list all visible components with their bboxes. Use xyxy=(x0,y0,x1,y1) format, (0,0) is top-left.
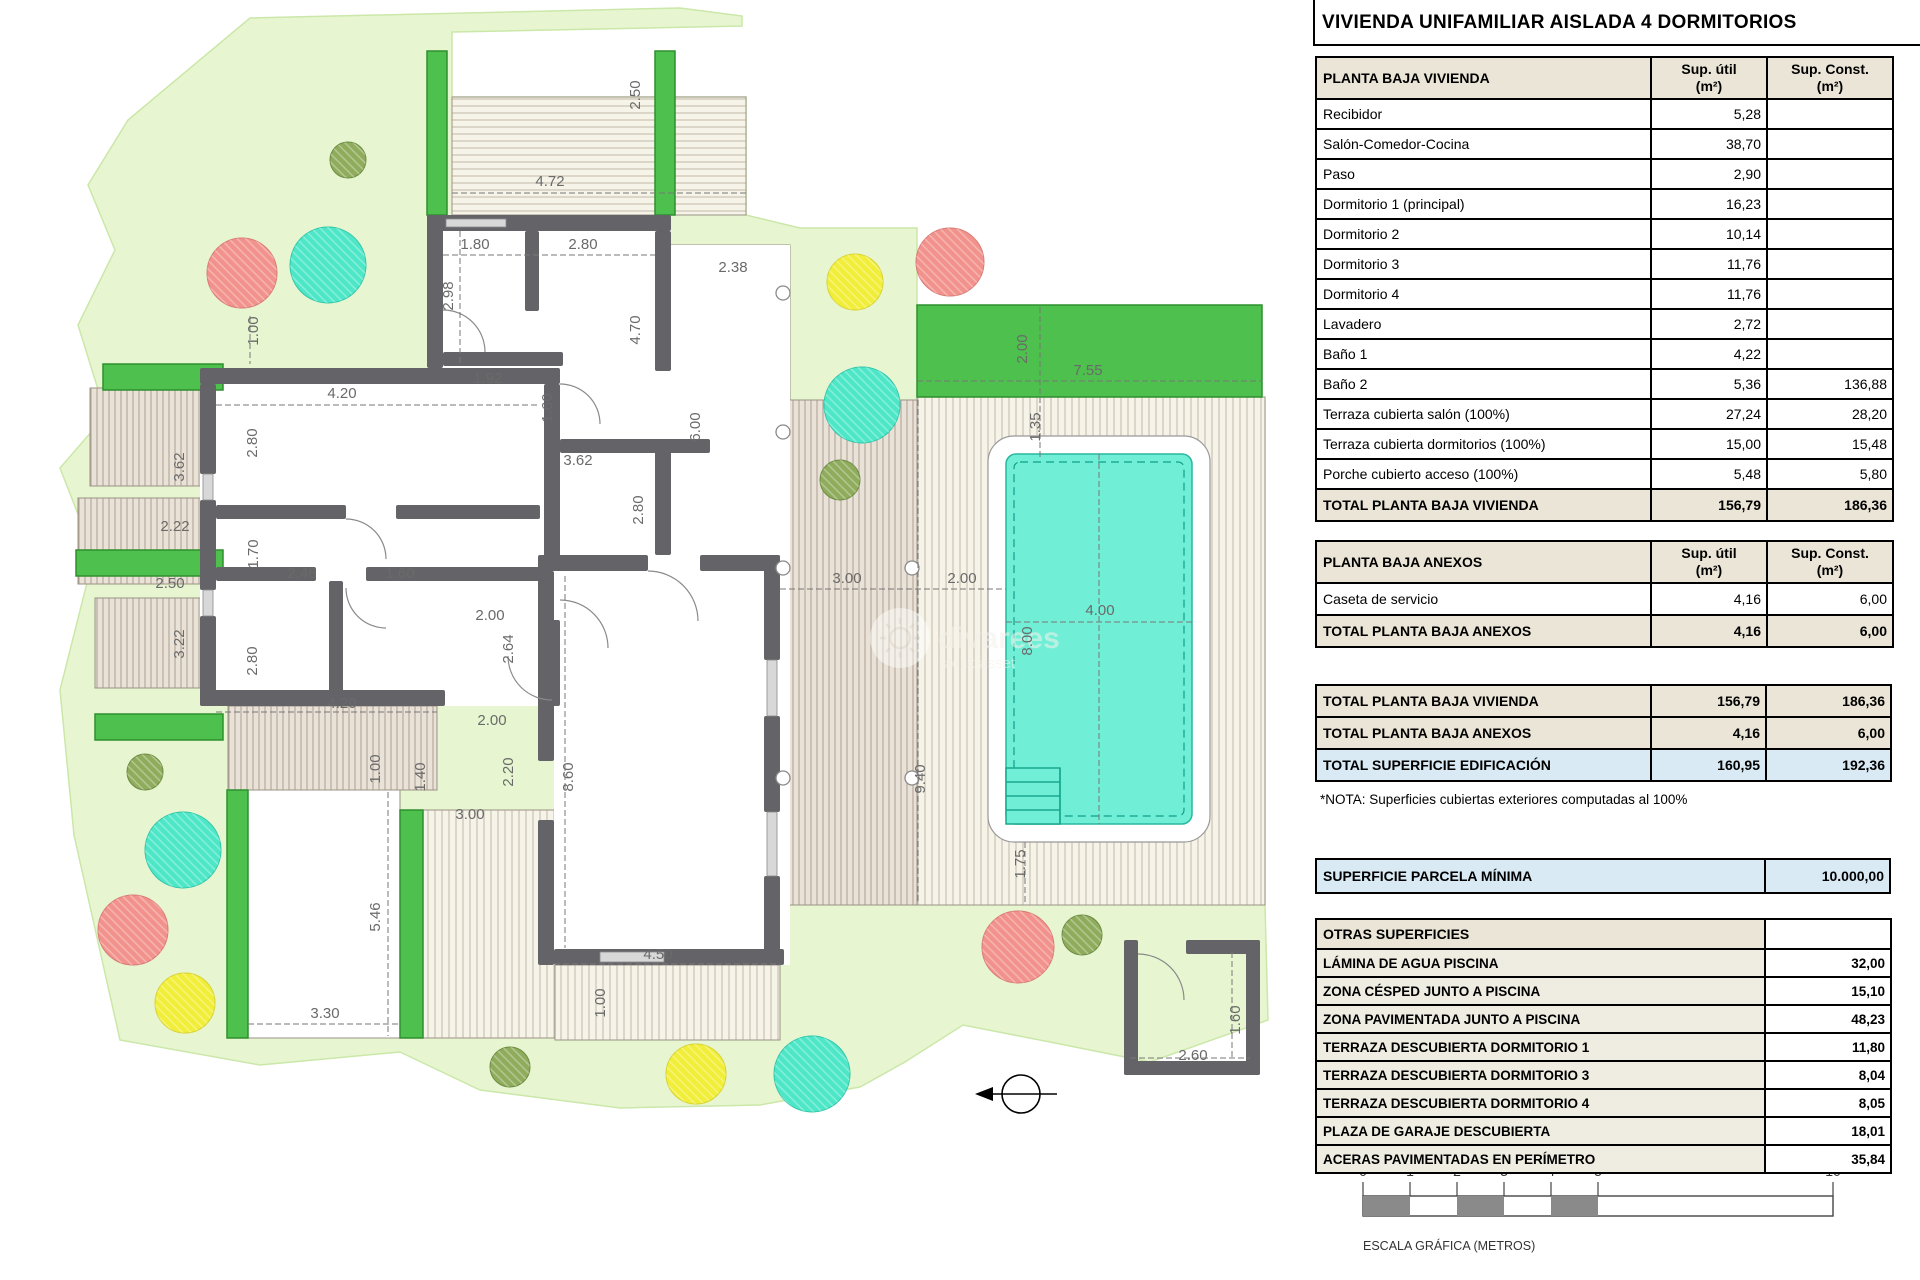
table-row: Porche cubierto acceso (100%)5,485,80 xyxy=(1316,459,1893,489)
table-totales: TOTAL PLANTA BAJA VIVIENDA156,79186,36TO… xyxy=(1315,684,1892,782)
value-sup-util: 15,00 xyxy=(1651,429,1767,459)
value-sup-const xyxy=(1767,189,1893,219)
row-label: TOTAL PLANTA BAJA ANEXOS xyxy=(1316,717,1651,749)
title-rule-vertical xyxy=(1313,0,1315,45)
value-sup-util: 160,95 xyxy=(1651,749,1766,781)
row-value: 18,01 xyxy=(1765,1117,1891,1145)
north-arrow-icon xyxy=(975,1075,1057,1113)
row-label: ACERAS PAVIMENTADAS EN PERÍMETRO xyxy=(1316,1145,1765,1173)
table-header-row: PLANTA BAJA ANEXOSSup. útil(m²)Sup. Cons… xyxy=(1316,541,1893,583)
dim-label: 2.20 xyxy=(500,757,517,786)
dim-label: 2.38 xyxy=(718,259,747,276)
dim-label: 3.22 xyxy=(171,629,188,658)
value-sup-util: 4,22 xyxy=(1651,339,1767,369)
row-label: TOTAL PLANTA BAJA ANEXOS xyxy=(1316,615,1651,647)
value-sup-util: 4,16 xyxy=(1651,717,1766,749)
row-label: TERRAZA DESCUBIERTA DORMITORIO 3 xyxy=(1316,1061,1765,1089)
row-label: TOTAL PLANTA BAJA VIVIENDA xyxy=(1316,685,1651,717)
value-sup-util: 2,90 xyxy=(1651,159,1767,189)
table-row: Dormitorio 1 (principal)16,23 xyxy=(1316,189,1893,219)
value-sup-const xyxy=(1767,309,1893,339)
value-sup-const: 136,88 xyxy=(1767,369,1893,399)
table-row: TOTAL PLANTA BAJA ANEXOS4,166,00 xyxy=(1316,717,1891,749)
dim-label: 2.98 xyxy=(440,281,457,310)
row-value: 8,05 xyxy=(1765,1089,1891,1117)
table-row: Caseta de servicio4,166,00 xyxy=(1316,583,1893,615)
value-sup-util: 5,48 xyxy=(1651,459,1767,489)
dim-label: 1.00 xyxy=(367,754,384,783)
row-label: ZONA PAVIMENTADA JUNTO A PISCINA xyxy=(1316,1005,1765,1033)
otras-header-label: OTRAS SUPERFICIES xyxy=(1316,919,1765,949)
value-sup-util: 156,79 xyxy=(1651,685,1766,717)
dim-label: 1.60 xyxy=(385,565,414,582)
dim-label: 2.50 xyxy=(627,80,644,109)
dim-label: 4.50 xyxy=(643,946,672,963)
row-label: Recibidor xyxy=(1316,99,1651,129)
table-planta-baja-anexos: PLANTA BAJA ANEXOSSup. útil(m²)Sup. Cons… xyxy=(1315,540,1894,648)
table-row: TERRAZA DESCUBIERTA DORMITORIO 38,04 xyxy=(1316,1061,1891,1089)
value-sup-util: 156,79 xyxy=(1651,489,1767,521)
value-sup-util: 5,36 xyxy=(1651,369,1767,399)
dim-label: 2.60 xyxy=(1178,1047,1207,1064)
dim-label: 2.50 xyxy=(155,575,184,592)
table-row: Dormitorio 210,14 xyxy=(1316,219,1893,249)
table-row: TOTAL PLANTA BAJA VIVIENDA156,79186,36 xyxy=(1316,685,1891,717)
value-sup-util: 4,16 xyxy=(1651,583,1767,615)
table-planta-baja-vivienda: PLANTA BAJA VIVIENDASup. útil(m²)Sup. Co… xyxy=(1315,56,1894,522)
dim-label: 2.00 xyxy=(475,607,504,624)
value-sup-const: 15,48 xyxy=(1767,429,1893,459)
table-otras-superficies: OTRAS SUPERFICIESLÁMINA DE AGUA PISCINA3… xyxy=(1315,918,1892,1174)
dim-label: 2.80 xyxy=(244,646,261,675)
value-sup-const xyxy=(1767,339,1893,369)
value-sup-const xyxy=(1767,279,1893,309)
row-label: Lavadero xyxy=(1316,309,1651,339)
dim-label: 1.75 xyxy=(1012,849,1029,878)
row-label: TERRAZA DESCUBIERTA DORMITORIO 4 xyxy=(1316,1089,1765,1117)
row-label: PLAZA DE GARAJE DESCUBIERTA xyxy=(1316,1117,1765,1145)
dim-label: 2.80 xyxy=(568,236,597,253)
dim-label: 1.70 xyxy=(245,539,262,568)
value-sup-util: 11,76 xyxy=(1651,279,1767,309)
value-sup-const: 192,36 xyxy=(1766,749,1891,781)
table-row: Terraza cubierta salón (100%)27,2428,20 xyxy=(1316,399,1893,429)
row-label: Dormitorio 3 xyxy=(1316,249,1651,279)
dim-label: 9.40 xyxy=(912,764,929,793)
table-row: Paso2,90 xyxy=(1316,159,1893,189)
value-sup-const: 28,20 xyxy=(1767,399,1893,429)
dim-label: 4.00 xyxy=(1085,602,1114,619)
svg-text:stock asset: stock asset xyxy=(940,655,1016,672)
row-value: 35,84 xyxy=(1765,1145,1891,1173)
row-value: 48,23 xyxy=(1765,1005,1891,1033)
pool-hedge xyxy=(917,305,1262,397)
value-sup-const: 5,80 xyxy=(1767,459,1893,489)
row-label: Terraza cubierta salón (100%) xyxy=(1316,399,1651,429)
parcela-minima-value: 10.000,00 xyxy=(1765,859,1890,893)
value-sup-util: 16,23 xyxy=(1651,189,1767,219)
dim-label: 8.00 xyxy=(1019,626,1036,655)
dim-label: 3.00 xyxy=(832,570,861,587)
otras-header-empty xyxy=(1765,919,1891,949)
value-sup-const: 186,36 xyxy=(1766,685,1891,717)
row-label: TOTAL PLANTA BAJA VIVIENDA xyxy=(1316,489,1651,521)
title-rule xyxy=(1313,44,1920,46)
value-sup-const: 6,00 xyxy=(1766,717,1891,749)
dim-label: 2.48 xyxy=(287,565,316,582)
row-value: 8,04 xyxy=(1765,1061,1891,1089)
row-label: Dormitorio 4 xyxy=(1316,279,1651,309)
row-label: Baño 1 xyxy=(1316,339,1651,369)
row-label: Dormitorio 1 (principal) xyxy=(1316,189,1651,219)
value-sup-const: 186,36 xyxy=(1767,489,1893,521)
table-header-label: PLANTA BAJA ANEXOS xyxy=(1316,541,1651,583)
value-sup-const xyxy=(1767,99,1893,129)
dim-label: 1.60 xyxy=(539,393,556,422)
row-value: 15,10 xyxy=(1765,977,1891,1005)
row-label: TOTAL SUPERFICIE EDIFICACIÓN xyxy=(1316,749,1651,781)
row-label: Porche cubierto acceso (100%) xyxy=(1316,459,1651,489)
row-label: Terraza cubierta dormitorios (100%) xyxy=(1316,429,1651,459)
scale-bar: 01234510 ESCALA GRÁFICA (METROS) xyxy=(1359,1163,1841,1253)
table-row: Dormitorio 311,76 xyxy=(1316,249,1893,279)
value-sup-util: 5,28 xyxy=(1651,99,1767,129)
dim-label: 8.60 xyxy=(560,762,577,791)
value-sup-const xyxy=(1767,249,1893,279)
table-row: Terraza cubierta dormitorios (100%)15,00… xyxy=(1316,429,1893,459)
row-label: Dormitorio 2 xyxy=(1316,219,1651,249)
dim-label: 2.80 xyxy=(630,495,647,524)
table-row: Lavadero2,72 xyxy=(1316,309,1893,339)
value-sup-const: 6,00 xyxy=(1767,583,1893,615)
dim-label: 1.40 xyxy=(412,762,429,791)
dim-label: 2.00 xyxy=(947,570,976,587)
dim-label: 3.62 xyxy=(171,452,188,481)
row-label: Caseta de servicio xyxy=(1316,583,1651,615)
value-sup-util: 27,24 xyxy=(1651,399,1767,429)
dim-label: 1.00 xyxy=(592,988,609,1017)
dim-label: 2.00 xyxy=(477,712,506,729)
dim-label: 4.70 xyxy=(627,315,644,344)
dim-label: 4.20 xyxy=(327,695,356,712)
value-sup-util: 2,72 xyxy=(1651,309,1767,339)
table-row: Baño 14,22 xyxy=(1316,339,1893,369)
value-sup-const xyxy=(1767,219,1893,249)
table-parcela-minima: SUPERFICIE PARCELA MÍNIMA10.000,00 xyxy=(1315,858,1891,894)
row-value: 32,00 xyxy=(1765,949,1891,977)
table-row: TERRAZA DESCUBIERTA DORMITORIO 111,80 xyxy=(1316,1033,1891,1061)
row-label: LÁMINA DE AGUA PISCINA xyxy=(1316,949,1765,977)
col-header-sup-util: Sup. útil(m²) xyxy=(1651,57,1767,99)
scale-caption: ESCALA GRÁFICA (METROS) xyxy=(1363,1238,1535,1253)
dim-label: 4.20 xyxy=(327,385,356,402)
dim-label: 7.55 xyxy=(1073,362,1102,379)
table-row: TOTAL SUPERFICIE EDIFICACIÓN160,95192,36 xyxy=(1316,749,1891,781)
table-row: SUPERFICIE PARCELA MÍNIMA10.000,00 xyxy=(1316,859,1890,893)
dim-label: 2.64 xyxy=(500,634,517,663)
value-sup-const xyxy=(1767,129,1893,159)
row-label: Salón-Comedor-Cocina xyxy=(1316,129,1651,159)
table-row: Salón-Comedor-Cocina38,70 xyxy=(1316,129,1893,159)
dim-label: 4.72 xyxy=(535,173,564,190)
table-row: TERRAZA DESCUBIERTA DORMITORIO 48,05 xyxy=(1316,1089,1891,1117)
table-row: ACERAS PAVIMENTADAS EN PERÍMETRO35,84 xyxy=(1316,1145,1891,1173)
value-sup-util: 4,16 xyxy=(1651,615,1767,647)
col-header-sup-const: Sup. Const.(m²) xyxy=(1767,541,1893,583)
dim-label: 1.80 xyxy=(460,236,489,253)
table-row: Baño 25,36136,88 xyxy=(1316,369,1893,399)
col-header-sup-util: Sup. útil(m²) xyxy=(1651,541,1767,583)
col-header-sup-const: Sup. Const.(m²) xyxy=(1767,57,1893,99)
row-label: Paso xyxy=(1316,159,1651,189)
value-sup-const xyxy=(1767,159,1893,189)
parcela-minima-label: SUPERFICIE PARCELA MÍNIMA xyxy=(1316,859,1765,893)
dim-label: 3.30 xyxy=(310,1005,339,1022)
table-row: TOTAL PLANTA BAJA ANEXOS4,166,00 xyxy=(1316,615,1893,647)
sheet: divarees stock asset 4.722.501.802.802.9… xyxy=(0,0,1920,1280)
row-label: Baño 2 xyxy=(1316,369,1651,399)
value-sup-util: 11,76 xyxy=(1651,249,1767,279)
table-header-label: PLANTA BAJA VIVIENDA xyxy=(1316,57,1651,99)
table-row: Dormitorio 411,76 xyxy=(1316,279,1893,309)
svg-text:divarees: divarees xyxy=(938,622,1060,655)
value-sup-util: 10,14 xyxy=(1651,219,1767,249)
dim-label: 1.00 xyxy=(245,316,262,345)
dim-label: 1.35 xyxy=(1027,412,1044,441)
dim-label: 6.00 xyxy=(687,412,704,441)
table-row: Recibidor5,28 xyxy=(1316,99,1893,129)
nota-text: *NOTA: Superficies cubiertas exteriores … xyxy=(1320,792,1687,807)
table-header-row: PLANTA BAJA VIVIENDASup. útil(m²)Sup. Co… xyxy=(1316,57,1893,99)
table-row: ZONA CÉSPED JUNTO A PISCINA15,10 xyxy=(1316,977,1891,1005)
table-header-row: OTRAS SUPERFICIES xyxy=(1316,919,1891,949)
dim-label: 3.00 xyxy=(455,806,484,823)
dim-label: 2.22 xyxy=(160,518,189,535)
dim-label: 1.92 xyxy=(473,370,502,387)
value-sup-util: 38,70 xyxy=(1651,129,1767,159)
pool-steps xyxy=(1006,768,1060,824)
dim-label: 2.80 xyxy=(244,428,261,457)
row-label: TERRAZA DESCUBIERTA DORMITORIO 1 xyxy=(1316,1033,1765,1061)
table-row: ZONA PAVIMENTADA JUNTO A PISCINA48,23 xyxy=(1316,1005,1891,1033)
table-row: TOTAL PLANTA BAJA VIVIENDA156,79186,36 xyxy=(1316,489,1893,521)
dim-label: 2.00 xyxy=(1014,334,1031,363)
dim-label: 1.60 xyxy=(1227,1005,1244,1034)
value-sup-const: 6,00 xyxy=(1767,615,1893,647)
dim-label: 3.62 xyxy=(563,452,592,469)
dim-label: 5.46 xyxy=(367,902,384,931)
page-title: VIVIENDA UNIFAMILIAR AISLADA 4 DORMITORI… xyxy=(1322,12,1797,34)
table-row: PLAZA DE GARAJE DESCUBIERTA18,01 xyxy=(1316,1117,1891,1145)
table-row: LÁMINA DE AGUA PISCINA32,00 xyxy=(1316,949,1891,977)
row-label: ZONA CÉSPED JUNTO A PISCINA xyxy=(1316,977,1765,1005)
row-value: 11,80 xyxy=(1765,1033,1891,1061)
